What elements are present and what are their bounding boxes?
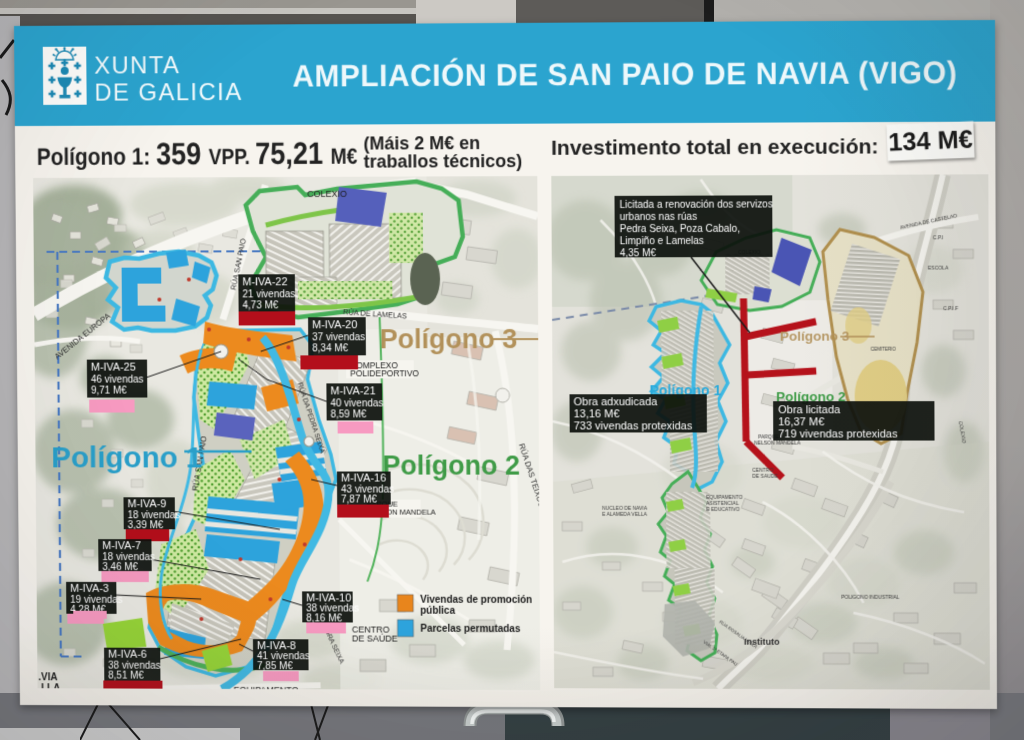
svg-text:46 vivendas: 46 vivendas: [91, 375, 144, 386]
svg-text:13,16 M€: 13,16 M€: [574, 408, 620, 420]
svg-text:733 vivendas protexidas: 733 vivendas protexidas: [574, 420, 693, 432]
svg-text:C.P.I.F: C.P.I.F: [943, 306, 958, 312]
svg-text:4,73 M€: 4,73 M€: [242, 300, 278, 311]
svg-text:40 vivendas: 40 vivendas: [330, 398, 383, 409]
svg-text:M-IVA-21: M-IVA-21: [330, 385, 375, 397]
svg-text:16,37 M€: 16,37 M€: [778, 416, 824, 428]
svg-text:EQUIPAMENTO: EQUIPAMENTO: [234, 685, 299, 690]
svg-text:Polígono 2: Polígono 2: [382, 450, 520, 480]
svg-text:Obra licitada: Obra licitada: [778, 404, 841, 416]
svg-text:Obra adxudicada: Obra adxudicada: [574, 396, 659, 408]
svg-text:M-IVA-16: M-IVA-16: [341, 472, 386, 484]
svg-text:ESCOLA: ESCOLA: [928, 266, 949, 272]
svg-text:COLEXIO: COLEXIO: [307, 189, 347, 199]
svg-text:urbanos nas rúas: urbanos nas rúas: [620, 212, 698, 223]
svg-text:E EDUCATIVO: E EDUCATIVO: [706, 507, 740, 513]
svg-text:Instituto: Instituto: [744, 637, 780, 647]
svg-text:M-IVA-20: M-IVA-20: [312, 319, 357, 331]
svg-text:719 vivendas protexidas: 719 vivendas protexidas: [778, 428, 898, 440]
svg-text:M-IVA-6: M-IVA-6: [108, 649, 147, 661]
svg-text:E ALAMEDA VELLA: E ALAMEDA VELLA: [602, 512, 648, 518]
svg-text:9,71 M€: 9,71 M€: [91, 386, 127, 397]
svg-text:Polígono 1: Polígono 1: [51, 441, 202, 474]
svg-text:Parcelas permutadas: Parcelas permutadas: [420, 624, 521, 635]
svg-text:M-IVA-25: M-IVA-25: [91, 362, 136, 374]
svg-text:Pedra Seixa, Poza Cabalo,: Pedra Seixa, Poza Cabalo,: [620, 224, 740, 236]
svg-text:M-IVA-7: M-IVA-7: [102, 540, 141, 552]
svg-text:Licitada a renovación dos serv: Licitada a renovación dos servizos: [620, 199, 773, 211]
svg-text:8,34 M€: 8,34 M€: [312, 343, 348, 354]
svg-text:M-IVA-3: M-IVA-3: [70, 583, 109, 595]
svg-text:M-IVA-22: M-IVA-22: [242, 276, 287, 288]
svg-text:8,59 M€: 8,59 M€: [331, 409, 367, 420]
svg-text:21 vivendas: 21 vivendas: [242, 289, 295, 300]
svg-text:7,85 M€: 7,85 M€: [257, 661, 293, 672]
svg-text:Polígono 3: Polígono 3: [780, 328, 850, 343]
svg-text:M-IVA-9: M-IVA-9: [127, 498, 166, 510]
svg-text:8,51 M€: 8,51 M€: [108, 670, 144, 681]
svg-text:37 vivendas: 37 vivendas: [312, 332, 365, 343]
svg-text:.LLA: .LLA: [38, 683, 60, 690]
svg-text:POLIGONO INDUSTRIAL: POLIGONO INDUSTRIAL: [841, 595, 899, 601]
svg-text:7,87 M€: 7,87 M€: [341, 494, 377, 505]
svg-text:Limpiño e Lamelas: Limpiño e Lamelas: [620, 236, 704, 247]
svg-text:pública: pública: [420, 606, 455, 617]
svg-text:EQUIPAMENTO: EQUIPAMENTO: [706, 495, 743, 501]
svg-text:DE SAÚDE: DE SAÚDE: [352, 633, 398, 643]
svg-text:NUCLEO DE NAVIA: NUCLEO DE NAVIA: [602, 506, 648, 512]
svg-text:Vivendas de promoción: Vivendas de promoción: [420, 595, 532, 606]
svg-text:CEMITERIO: CEMITERIO: [871, 347, 897, 352]
svg-text:CENTRO: CENTRO: [752, 468, 773, 474]
svg-text:4,35 M€: 4,35 M€: [620, 248, 657, 259]
svg-text:.VIA: .VIA: [38, 672, 57, 683]
svg-text:POLIDEPORTIVO: POLIDEPORTIVO: [350, 368, 419, 378]
svg-text:C.P.I: C.P.I: [933, 235, 944, 241]
svg-text:ASISTENCIAL: ASISTENCIAL: [706, 501, 739, 507]
svg-text:NELSON MANDELA: NELSON MANDELA: [754, 441, 801, 447]
svg-text:DE SAUDE: DE SAUDE: [752, 474, 778, 480]
